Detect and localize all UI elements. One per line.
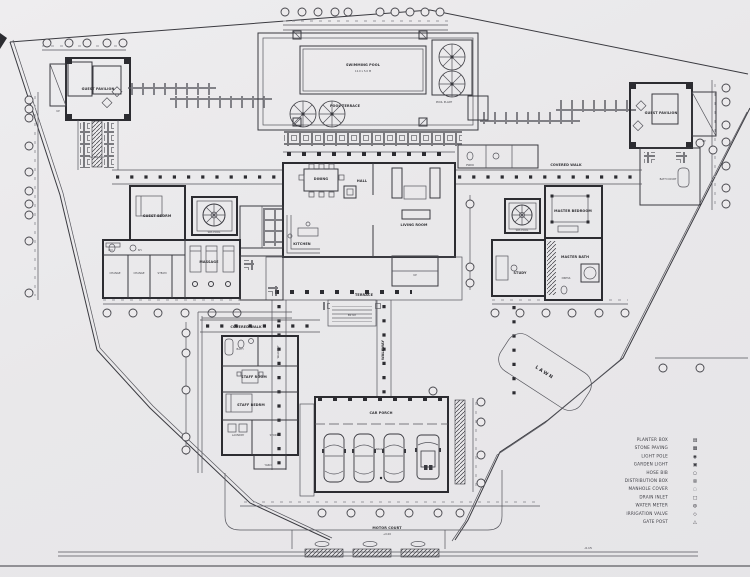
service-wing: COVERED WALK BATH STAFF ROOM STAFF BEDRM…: [198, 312, 320, 496]
water-rill-label: WATER RILL: [89, 155, 105, 159]
legend-row: IRRIGATION VALVE◇: [626, 511, 697, 518]
lawn-label: LAWN: [534, 365, 555, 382]
motor-court-label: MOTOR COURT: [372, 526, 402, 530]
legend-label: WATER METER: [636, 503, 668, 508]
dress-label: DRESS: [562, 276, 571, 280]
road-level-label: -0.15: [584, 546, 592, 550]
pavilion-left-stair-label: UP: [56, 109, 60, 113]
covered-walkway-right: COVERED WALK PWDR: [455, 145, 642, 184]
wc-label: W.C.: [108, 248, 114, 252]
store-label: STORE: [270, 433, 279, 437]
covered-walk-left-label: COVERED WALK: [230, 325, 262, 329]
pantry-block: [240, 206, 283, 248]
bath-court-annex: BATH COURT: [640, 148, 700, 205]
road: -0.15: [0, 541, 750, 566]
terrace: TERRACE: [266, 257, 462, 300]
powder-rooms: PWDR: [458, 145, 538, 168]
pool-plant-label: POOL PLANT: [436, 100, 453, 104]
legend-symbol: ⊠: [693, 480, 697, 485]
pool-corner-piers: [293, 31, 427, 126]
master-bed-label: MASTER BEDROOM: [554, 209, 592, 213]
legend-symbol: □: [693, 496, 698, 501]
covered-walkway-left: [112, 170, 283, 184]
dining-label: DINING: [314, 177, 329, 181]
pool-deck-label: POOL TERRACE: [330, 104, 361, 108]
massage-room: MASSAGE: [190, 246, 234, 287]
trellis-strip: [455, 400, 465, 484]
legend-label: HOSE BIB: [646, 470, 668, 475]
legend-symbol: △: [693, 520, 697, 526]
staff-room-label: STAFF ROOM: [241, 375, 267, 379]
living-area: LIVING ROOM: [392, 168, 440, 227]
guest-bed-label: GUEST BEDRM: [143, 214, 172, 218]
court-level-label: +0.00: [383, 532, 391, 536]
floor-plan-drawing: -0.15: [0, 0, 750, 577]
living-label: LIVING ROOM: [401, 223, 428, 227]
legend-symbol: ○: [693, 471, 697, 476]
master-bath-label: MASTER BATH: [561, 255, 589, 259]
legend-symbol: ▣: [693, 463, 698, 468]
walkway-label: WALKWAY: [381, 340, 385, 360]
staff-bath-label: BATH: [237, 347, 244, 351]
plan-sheet: -0.15: [0, 0, 750, 577]
garage: CAR PORCH GARAGE: [315, 397, 465, 492]
legend-symbol: ◍: [693, 504, 697, 509]
legend-label: IRRIGATION VALVE: [626, 511, 668, 516]
shower-label: SH.: [138, 248, 143, 252]
staff-bed-label: STAFF BEDRM: [237, 403, 265, 407]
legend-label: MANHOLE COVER: [628, 486, 668, 491]
paver-path-east: [480, 100, 636, 124]
kitchen-area: KITCHEN: [287, 215, 320, 253]
spa-room-left: SPA POOL: [192, 197, 237, 235]
legend-row: MANHOLE COVER◌: [628, 486, 697, 493]
pavilion-right-label: GUEST PAVILION: [645, 111, 678, 115]
entry-label: ENTRY: [348, 313, 357, 317]
guest-pavilion-left: GUEST PAVILION UP: [50, 58, 130, 120]
legend: PLANTER BOX▤ STONE PAVING▦ LIGHT POLE◉ G…: [625, 437, 698, 526]
main-stair: UP: [392, 256, 438, 286]
covered-walk-right-label: COVERED WALK: [550, 163, 582, 167]
legend-row: LIGHT POLE◉: [641, 453, 697, 460]
steam-label: STEAM: [158, 271, 167, 275]
car-3: [382, 434, 406, 482]
stepping-path: [300, 404, 314, 496]
lawn-area: LAWN: [493, 328, 596, 416]
pool-label: SWIMMING POOL: [346, 63, 381, 67]
left-wing-vestibule: [240, 256, 283, 300]
car-4-suv: [415, 435, 441, 479]
pool-dims-label: 12.0 x 5.0 M: [355, 69, 371, 73]
spa-right-label: SPA POOL: [516, 228, 529, 232]
legend-symbol: ◇: [693, 511, 697, 517]
legend-label: GARDEN LIGHT: [634, 462, 669, 467]
spa-room-right: SPA POOL: [505, 199, 540, 233]
powder-label: PWDR: [466, 163, 474, 167]
legend-label: DISTRIBUTION BOX: [625, 478, 668, 483]
legend-symbol: ▤: [693, 438, 698, 444]
right-wing: SPA POOL MASTER BEDROOM MASTER BATH DRES…: [492, 186, 602, 300]
pool-pavilion: SWIMMING POOL 12.0 x 5.0 M POOL TERRACE …: [258, 31, 488, 146]
entry-porch: ENTRY: [322, 300, 382, 326]
legend-symbol: ▦: [693, 446, 698, 452]
legend-symbol: ◉: [693, 455, 697, 460]
legend-symbol: ◌: [693, 488, 697, 493]
terrace-label: TERRACE: [355, 293, 374, 297]
car-1: [322, 434, 346, 482]
study-label: STUDY: [513, 271, 526, 275]
legend-row: STONE PAVING▦: [635, 445, 698, 452]
hall-label: HALL: [357, 179, 368, 183]
legend-label: GATE POST: [643, 519, 668, 524]
walkway2-label: WALKWAY: [276, 345, 280, 358]
water-rill-corridor: WATER RILL: [78, 120, 118, 170]
legend-label: LIGHT POLE: [641, 453, 668, 458]
garage-label: GARAGE: [374, 447, 385, 451]
legend-row: PLANTER BOX▤: [637, 437, 698, 444]
legend-row: WATER METER◍: [636, 503, 698, 510]
legend-label: DRAIN INLET: [639, 494, 668, 499]
legend-label: PLANTER BOX: [637, 437, 668, 442]
legend-row: GATE POST△: [643, 519, 697, 526]
legend-label: STONE PAVING: [635, 445, 668, 450]
car-2: [352, 434, 376, 482]
massage-label: MASSAGE: [199, 260, 219, 264]
change1-label: CHANGE: [109, 271, 120, 275]
study-room: STUDY: [492, 240, 545, 296]
dining-area: DINING: [299, 164, 344, 197]
yard-label: YARD: [265, 463, 272, 467]
legend-row: HOSE BIB○: [646, 470, 697, 477]
legend-row: DRAIN INLET□: [639, 494, 697, 501]
laundry-label: LAUNDRY: [232, 433, 245, 437]
paver-path-west: [128, 83, 272, 108]
legend-row: GARDEN LIGHT▣: [634, 462, 698, 469]
bath-court-label: BATH COURT: [660, 177, 677, 181]
left-wing: GUEST BEDRM SPA POOL MASSAGE W.C. SH. CH…: [103, 186, 283, 300]
stair-up-label: UP: [413, 273, 417, 277]
carport-label: CAR PORCH: [369, 411, 392, 415]
kitchen-label: KITCHEN: [293, 242, 310, 246]
pool-planter-row: [284, 131, 462, 146]
pavilion-left-label: GUEST PAVILION: [82, 87, 115, 91]
legend-row: DISTRIBUTION BOX⊠: [625, 478, 697, 485]
spa-left-label: SPA POOL: [208, 230, 221, 234]
change2-label: CHANGE: [133, 271, 144, 275]
pavilion-right-stair-label: UP: [702, 139, 706, 143]
